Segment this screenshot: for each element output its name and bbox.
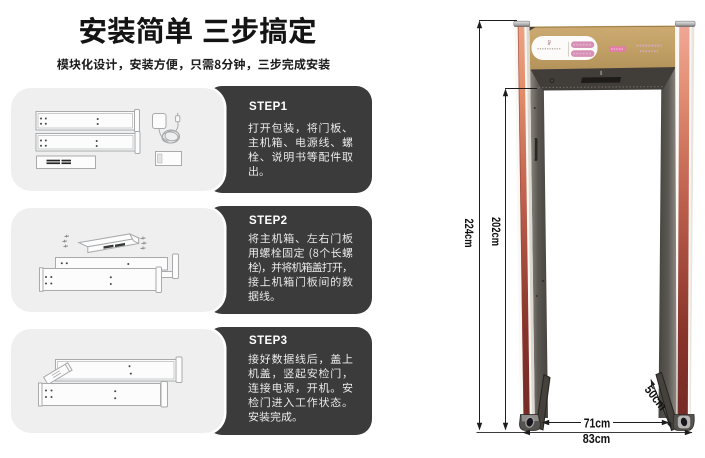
svg-text:71cm: 71cm [584, 417, 611, 431]
svg-text:83cm: 83cm [583, 432, 611, 446]
svg-text:202cm: 202cm [489, 217, 503, 246]
svg-text:224cm: 224cm [462, 219, 476, 248]
